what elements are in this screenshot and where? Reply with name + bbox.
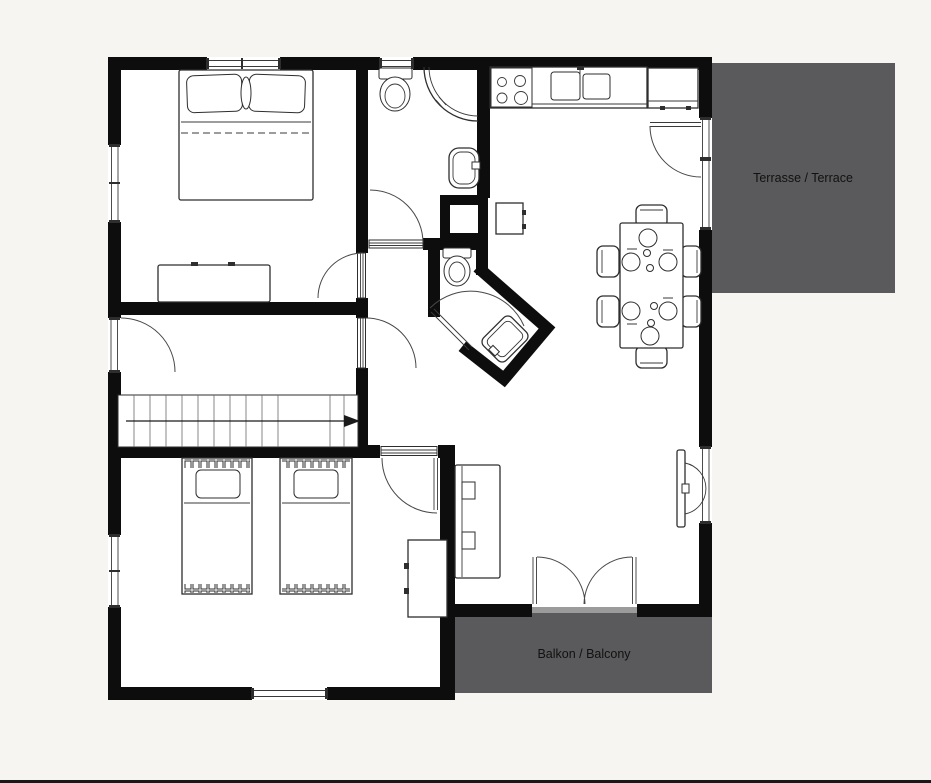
single-bed [280, 458, 352, 594]
stove [491, 68, 532, 107]
single-bed [182, 458, 252, 594]
double-bed [179, 70, 313, 200]
dining-chair [681, 246, 701, 277]
dresser [158, 262, 270, 302]
fridge-cabinet [648, 68, 698, 110]
dining-chair [597, 246, 619, 277]
floor-plan-drawing: Terrasse / Terrace Balkon / Balcony [0, 0, 931, 783]
desk-cabinet [404, 540, 447, 617]
toilet [379, 68, 412, 111]
balcony-label: Balkon / Balcony [537, 647, 631, 661]
balcony-threshold [528, 607, 642, 613]
staircase [118, 395, 360, 447]
living-cabinet [455, 465, 500, 578]
dining-chair [597, 296, 619, 327]
floor-plan-page: Terrasse / Terrace Balkon / Balcony [0, 0, 931, 783]
dining-chair [681, 296, 701, 327]
dining-chair [636, 346, 667, 368]
wc-toilet [443, 248, 471, 286]
bathroom-sink [449, 148, 480, 188]
terrace-label: Terrasse / Terrace [753, 171, 853, 185]
small-cabinet [496, 203, 526, 234]
